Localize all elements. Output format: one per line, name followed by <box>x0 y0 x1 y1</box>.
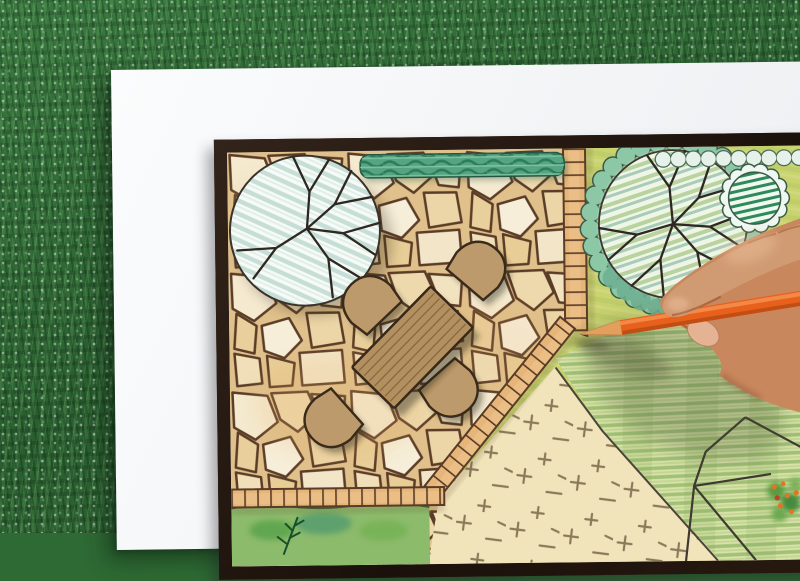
top-shrub-band <box>663 157 800 159</box>
garden-plan-drawing <box>227 145 800 567</box>
paper-sheet <box>111 61 800 550</box>
paver-border-horizontal <box>231 487 444 514</box>
hedge <box>360 152 567 182</box>
plan-frame <box>214 132 800 580</box>
corner-bush <box>727 171 782 226</box>
plan-drawing-area <box>227 145 800 567</box>
